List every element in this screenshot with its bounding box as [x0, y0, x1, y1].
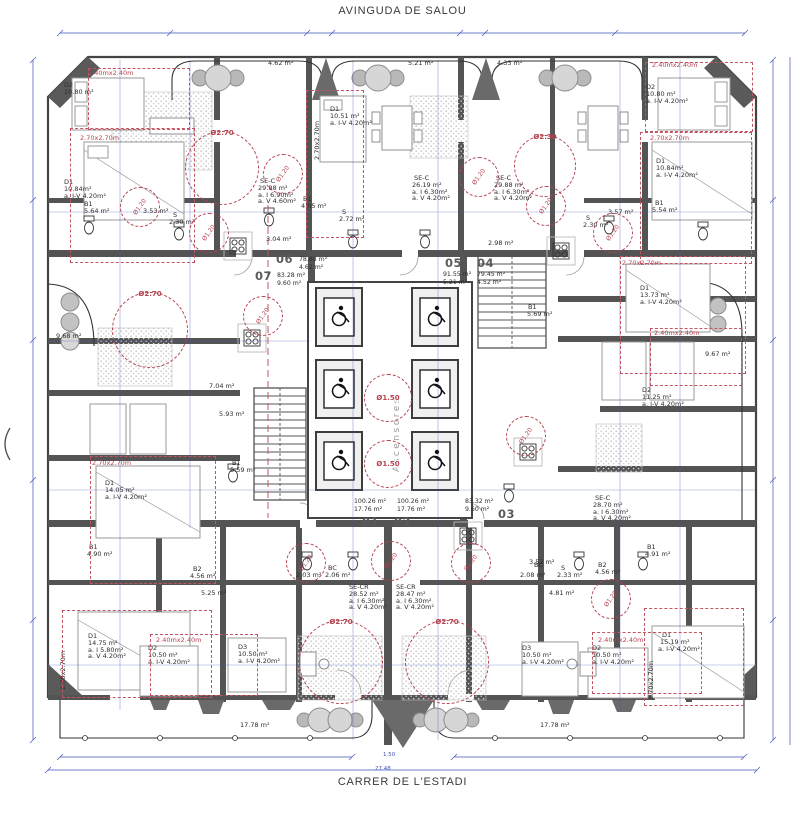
unit-areas: 100.26 m² 17.76 m² — [354, 498, 386, 515]
clearance-box — [645, 62, 753, 132]
room-label: BC — [534, 562, 543, 570]
room-label: 4.81 m² — [549, 590, 574, 598]
unit-number: 04 — [477, 257, 494, 271]
room-label: 5.21 m² — [408, 60, 433, 68]
unit-number: 02 — [394, 516, 411, 530]
room-label: a. V 4.20m² — [396, 604, 434, 612]
annotation-layer: Ascensores 4.62 m²5.21 m²4.33 m²D210.80 … — [0, 0, 805, 814]
room-label: 3.04 m² — [266, 236, 291, 244]
clearance-circle: Ø2.70 — [185, 131, 259, 205]
clearance-circle: Ø1.20 — [243, 296, 283, 336]
clearance-circle: Ø1.20 — [371, 541, 411, 581]
street-name-bottom: CARRER DE L'ESTADI — [0, 776, 805, 788]
room-label: 2.08 m² — [520, 572, 545, 580]
clearance-circle-label: Ø1.50 — [376, 394, 399, 402]
clearance-box — [306, 90, 364, 238]
clearance-circle-label: Ø1.20 — [518, 427, 534, 446]
unit-areas: 79.45 m² 4.52 m² — [477, 271, 505, 288]
clearance-circle: Ø1.20 — [263, 154, 303, 194]
clearance-circle-label: Ø1.20 — [383, 552, 399, 571]
clearance-circle: Ø1.20 — [189, 213, 229, 253]
clearance-box — [640, 132, 752, 264]
clearance-circle: Ø1.20 — [286, 543, 326, 583]
room-label: 4.62 m² — [268, 60, 293, 68]
clearance-circle-label: Ø2.30 — [533, 133, 556, 141]
room-label: 9.68 m² — [56, 333, 81, 341]
clearance-circle-label: Ø1.20 — [463, 554, 479, 573]
room-label: a. V 4.20m² — [593, 515, 631, 523]
clearance-circle-label: Ø2.70 — [138, 290, 161, 298]
clearance-circle-label: Ø1.20 — [605, 224, 621, 243]
unit-number: 05 — [445, 257, 462, 271]
unit-areas: 78.88 m² 4.62 m² — [299, 256, 327, 273]
room-label: 5.69 m² — [527, 311, 552, 319]
clearance-circle-label: Ø1.20 — [603, 590, 619, 609]
clearance-circle: Ø1.20 — [591, 579, 631, 619]
unit-number: 07 — [255, 270, 272, 284]
clearance-box — [644, 608, 744, 706]
clearance-circle-label: Ø1.20 — [538, 197, 554, 216]
clearance-circle: Ø1.50 — [364, 374, 412, 422]
clearance-box — [70, 128, 195, 263]
room-label: 1.50 — [383, 752, 395, 758]
room-label: 4.33 m² — [497, 60, 522, 68]
clearance-circle-label: Ø2.70 — [435, 618, 458, 626]
clearance-circle: Ø1.20 — [526, 186, 566, 226]
unit-number: 01 — [362, 516, 379, 530]
clearance-circle: Ø1.50 — [364, 440, 412, 488]
clearance-circle-label: Ø1.20 — [275, 165, 291, 184]
clearance-circle: Ø2.70 — [299, 620, 383, 704]
clearance-box — [90, 456, 216, 584]
floor-plan-sheet: AVINGUDA DE SALOU — [0, 0, 805, 814]
room-label: 5.25 m² — [201, 590, 226, 598]
unit-areas: 83.28 m² 9.60 m² — [277, 272, 305, 289]
clearance-circle: Ø2.70 — [112, 292, 188, 368]
room-label: 7.04 m² — [209, 383, 234, 391]
clearance-box — [650, 328, 742, 386]
clearance-circle-label: Ø1.20 — [255, 307, 271, 326]
clearance-circle-label: Ø2.70 — [210, 129, 233, 137]
unit-areas: 100.26 m² 17.76 m² — [397, 498, 429, 515]
unit-areas: 83.32 m² 9.60 m² — [465, 498, 493, 515]
unit-number: 06 — [276, 253, 293, 267]
clearance-circle-label: Ø2.70 — [329, 618, 352, 626]
room-label: 5.93 m² — [219, 411, 244, 419]
room-label: 4.56 m² — [595, 569, 620, 577]
room-label: 5.59 m² — [230, 467, 255, 475]
room-label: a. V 4.20m² — [412, 195, 450, 203]
room-label: a. V 4.20m² — [349, 604, 387, 612]
room-label: a. I-V 4.20m² — [522, 659, 564, 667]
clearance-circle-label: Ø1.20 — [298, 554, 314, 573]
room-label: 4.91 m² — [645, 551, 670, 559]
room-label: 2.98 m² — [488, 240, 513, 248]
clearance-circle-label: Ø1.50 — [376, 460, 399, 468]
clearance-circle: Ø1.20 — [451, 543, 491, 583]
room-label: a. I-V 4.20m² — [642, 401, 684, 409]
clearance-circle: Ø1.20 — [593, 213, 633, 253]
room-label: a. V 4.60m² — [258, 198, 296, 206]
room-label: 2.06 m² — [325, 572, 350, 580]
unit-number: 03 — [498, 508, 515, 522]
clearance-box — [150, 634, 258, 696]
clearance-circle: Ø1.20 — [459, 157, 499, 197]
room-label: 2.33 m² — [557, 572, 582, 580]
clearance-circle-label: Ø1.20 — [201, 224, 217, 243]
room-label: 17.78 m² — [240, 722, 270, 730]
room-label: 17.78 m² — [540, 722, 570, 730]
clearance-circle: Ø1.20 — [506, 416, 546, 456]
clearance-box — [88, 68, 190, 130]
clearance-circle-label: Ø1.20 — [471, 168, 487, 187]
unit-areas: 91.55 m² 5.21 m² — [443, 271, 471, 288]
room-label: 27.48 — [375, 766, 391, 772]
clearance-circle: Ø2.70 — [405, 620, 489, 704]
